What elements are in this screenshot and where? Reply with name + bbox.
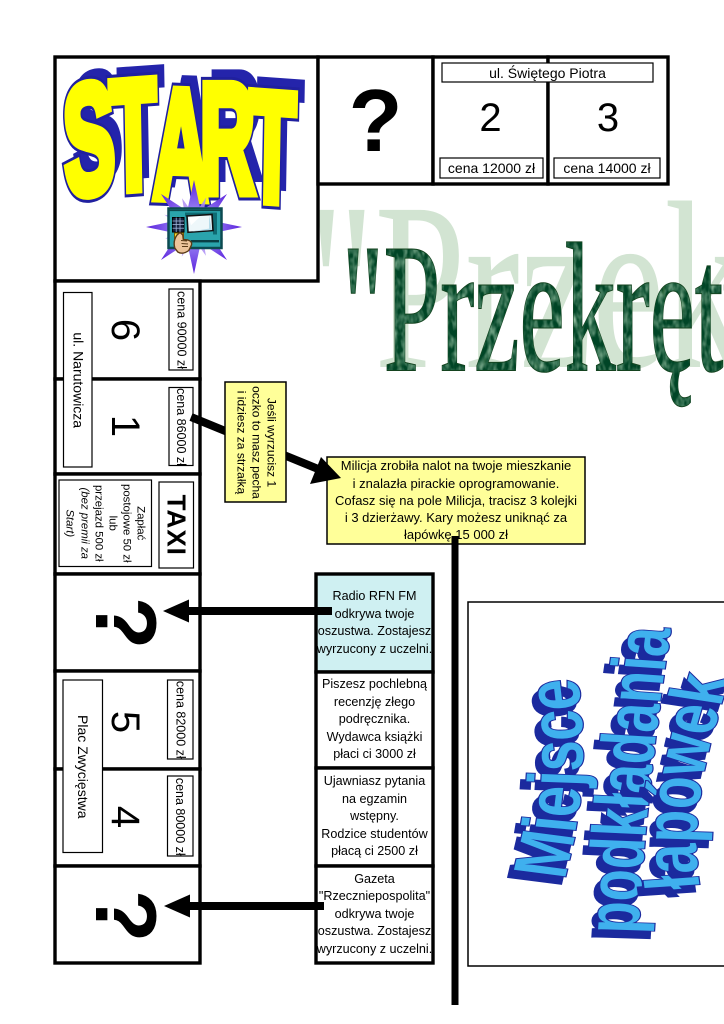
svg-text:T: T	[109, 47, 158, 223]
svg-text:R: R	[200, 52, 255, 225]
svg-text:"Przekręty: "Przekręty	[342, 207, 724, 411]
svg-text:T: T	[247, 59, 296, 235]
